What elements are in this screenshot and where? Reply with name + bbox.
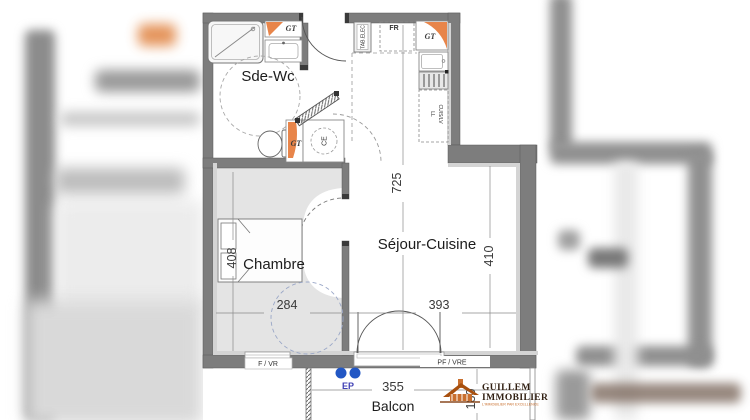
floorplan-drawing: GT GT CE <box>0 0 750 420</box>
dim-410: 410 <box>482 246 496 267</box>
dim-355: 355 <box>382 379 404 394</box>
gt-label: GT <box>425 32 437 41</box>
window-fvr: F / VR <box>245 352 292 369</box>
tab-elec-label: TAB.ELEC <box>361 25 367 49</box>
dim-284: 284 <box>277 298 298 312</box>
room-label-chambre: Chambre <box>243 256 305 273</box>
gt-duct-kitchen: GT <box>416 21 448 50</box>
fridge-slot: FR <box>380 22 414 51</box>
kitchen-sink <box>419 52 448 71</box>
room-label-sde-wc: Sde-Wc <box>241 68 295 85</box>
fvr-label: F / VR <box>258 361 278 368</box>
dim-393: 393 <box>429 298 450 312</box>
dim-725: 725 <box>390 173 404 194</box>
gt-label: GT <box>286 24 298 33</box>
agency-name-2: IMMOBILIER <box>482 393 548 403</box>
gt-label: GT <box>291 139 303 148</box>
cooktop <box>419 70 449 89</box>
ep-drain: EP <box>336 368 361 392</box>
french-door-pfvre: PF / VRE <box>354 311 490 367</box>
floorplan-page: GT GT CE <box>0 0 750 420</box>
ll-label: LL <box>429 111 435 117</box>
fr-label: FR <box>389 25 398 32</box>
agency-name-1: GUILLEM <box>482 383 531 393</box>
ce-label: CE <box>322 136 329 146</box>
agency-tagline: L'IMMOBILIER PAR EXCELLENCE <box>482 403 539 407</box>
washbasin <box>265 40 302 62</box>
electrical-panel: TAB.ELEC <box>354 22 371 52</box>
gt-duct-bathroom: GT <box>265 21 302 37</box>
ep-label: EP <box>342 381 354 391</box>
cuis-lv-label: CUIS/LV <box>437 104 443 124</box>
entry-door-swing <box>302 17 346 61</box>
dim-408: 408 <box>225 248 239 269</box>
room-label-balcon: Balcon <box>372 398 415 414</box>
pfvre-label: PF / VRE <box>437 360 467 367</box>
water-heater-closet: CE <box>303 120 344 162</box>
room-label-sejour: Séjour-Cuisine <box>378 236 476 253</box>
gt-duct-wc: GT <box>286 120 303 162</box>
